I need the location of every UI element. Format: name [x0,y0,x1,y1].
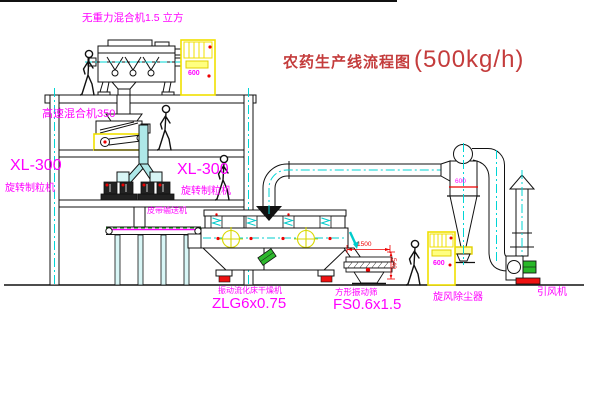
vibrating-sieve [344,245,395,284]
cyclone-outlet-duct [472,149,511,272]
flow-diagram-canvas: 农药生产线流程图 (500kg/h) 无重力混合机1.5 立方 高速混合机350… [0,0,600,403]
label-gravity-mixer: 无重力混合机1.5 立方 [82,13,184,24]
label-granulator-right-model: XL-300 [177,162,229,178]
label-cyclone: 旋风除尘器 [433,293,483,303]
label-belt-conveyor: 皮带输送机 [147,207,187,215]
label-granulator-right-name: 旋转制粒机 [181,187,231,197]
gravity-free-mixer [85,40,190,95]
granulator-right [138,182,174,200]
person-ground [407,240,421,285]
label-dryer-name: 振动流化床干燥机 [218,287,282,295]
control-cabinet-right [428,232,455,285]
cabinet-right-panel-text: 600 [433,260,445,267]
control-cabinet-top [181,40,215,95]
label-sieve-model: FS0.6x1.5 [333,297,401,312]
granulator-left [101,182,137,200]
belt-conveyor [106,207,201,285]
feed-chute [117,95,130,114]
label-granulator-left-name: 旋转制粒机 [5,184,55,194]
label-dryer-model: ZLG6x0.75 [212,296,286,311]
fluid-bed-dryer [188,210,361,282]
induced-draft-fan [506,256,540,284]
title-text: 农药生产线流程图 [283,51,411,72]
cyclone-marking: 600 [455,179,466,186]
label-high-speed-mixer: 高速混合机350 [42,109,115,120]
granulator-hopper-left [117,172,129,182]
title-capacity: (500kg/h) [414,46,524,74]
label-fan: 引风机 [537,288,567,298]
dim-sieve-length: 1500 [357,242,371,249]
label-granulator-left-model: XL-300 [10,158,62,174]
granulator-hopper-right [150,172,162,182]
diagram-title: 农药生产线流程图 (500kg/h) [283,46,524,74]
dim-sieve-height: 540 [390,258,397,269]
person-middle-floor [158,105,172,150]
person-top-floor [81,50,95,95]
cabinet-top-panel-text: 600 [188,70,200,77]
